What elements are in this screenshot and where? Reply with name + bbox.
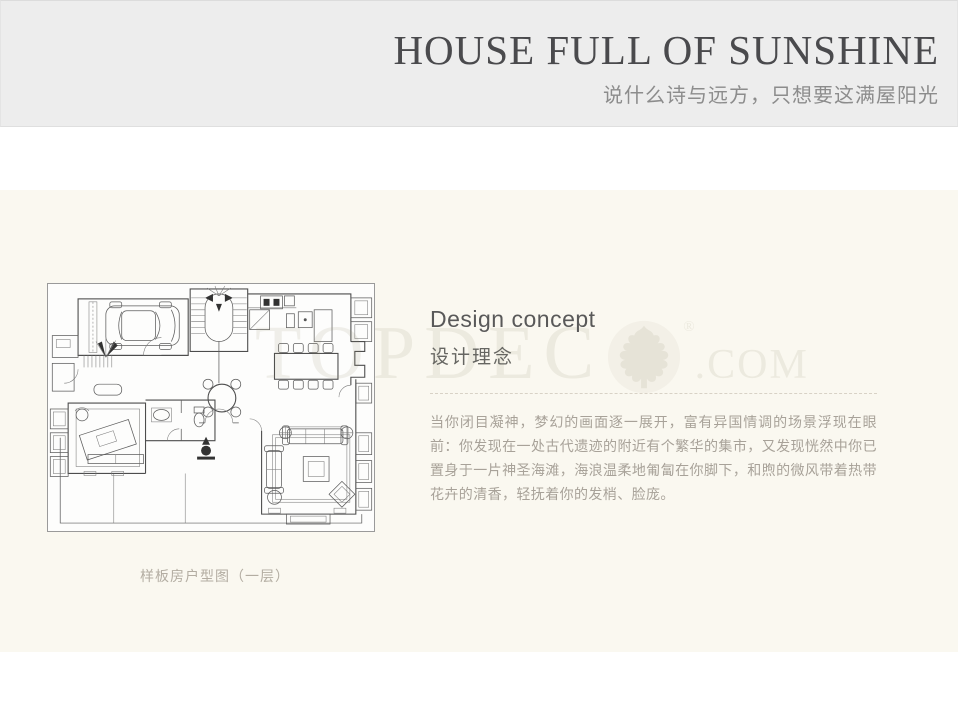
floorplan-caption: 样板房户型图（一层） [140,566,290,586]
dashed-divider [430,393,877,394]
section-title-en: Design concept [430,306,877,333]
content-band: TOPDEC ® .COM Design concept 设计理念 当你闭目凝神… [0,190,958,652]
floorplan-image [47,283,375,532]
page-title: HOUSE FULL OF SUNSHINE [393,28,939,72]
page-subtitle: 说什么诗与远方，只想要这满屋阳光 [393,79,939,108]
section-title-zh: 设计理念 [430,342,877,369]
design-concept-section: Design concept 设计理念 当你闭目凝神，梦幻的画面逐一展开，富有异… [430,306,877,506]
floorplan-drawing [48,284,374,531]
header-text-group: HOUSE FULL OF SUNSHINE 说什么诗与远方，只想要这满屋阳光 [393,1,939,108]
page-header: HOUSE FULL OF SUNSHINE 说什么诗与远方，只想要这满屋阳光 [0,0,958,127]
concept-paragraph: 当你闭目凝神，梦幻的画面逐一展开，富有异国情调的场景浮现在眼前：你发现在一处古代… [430,410,877,506]
